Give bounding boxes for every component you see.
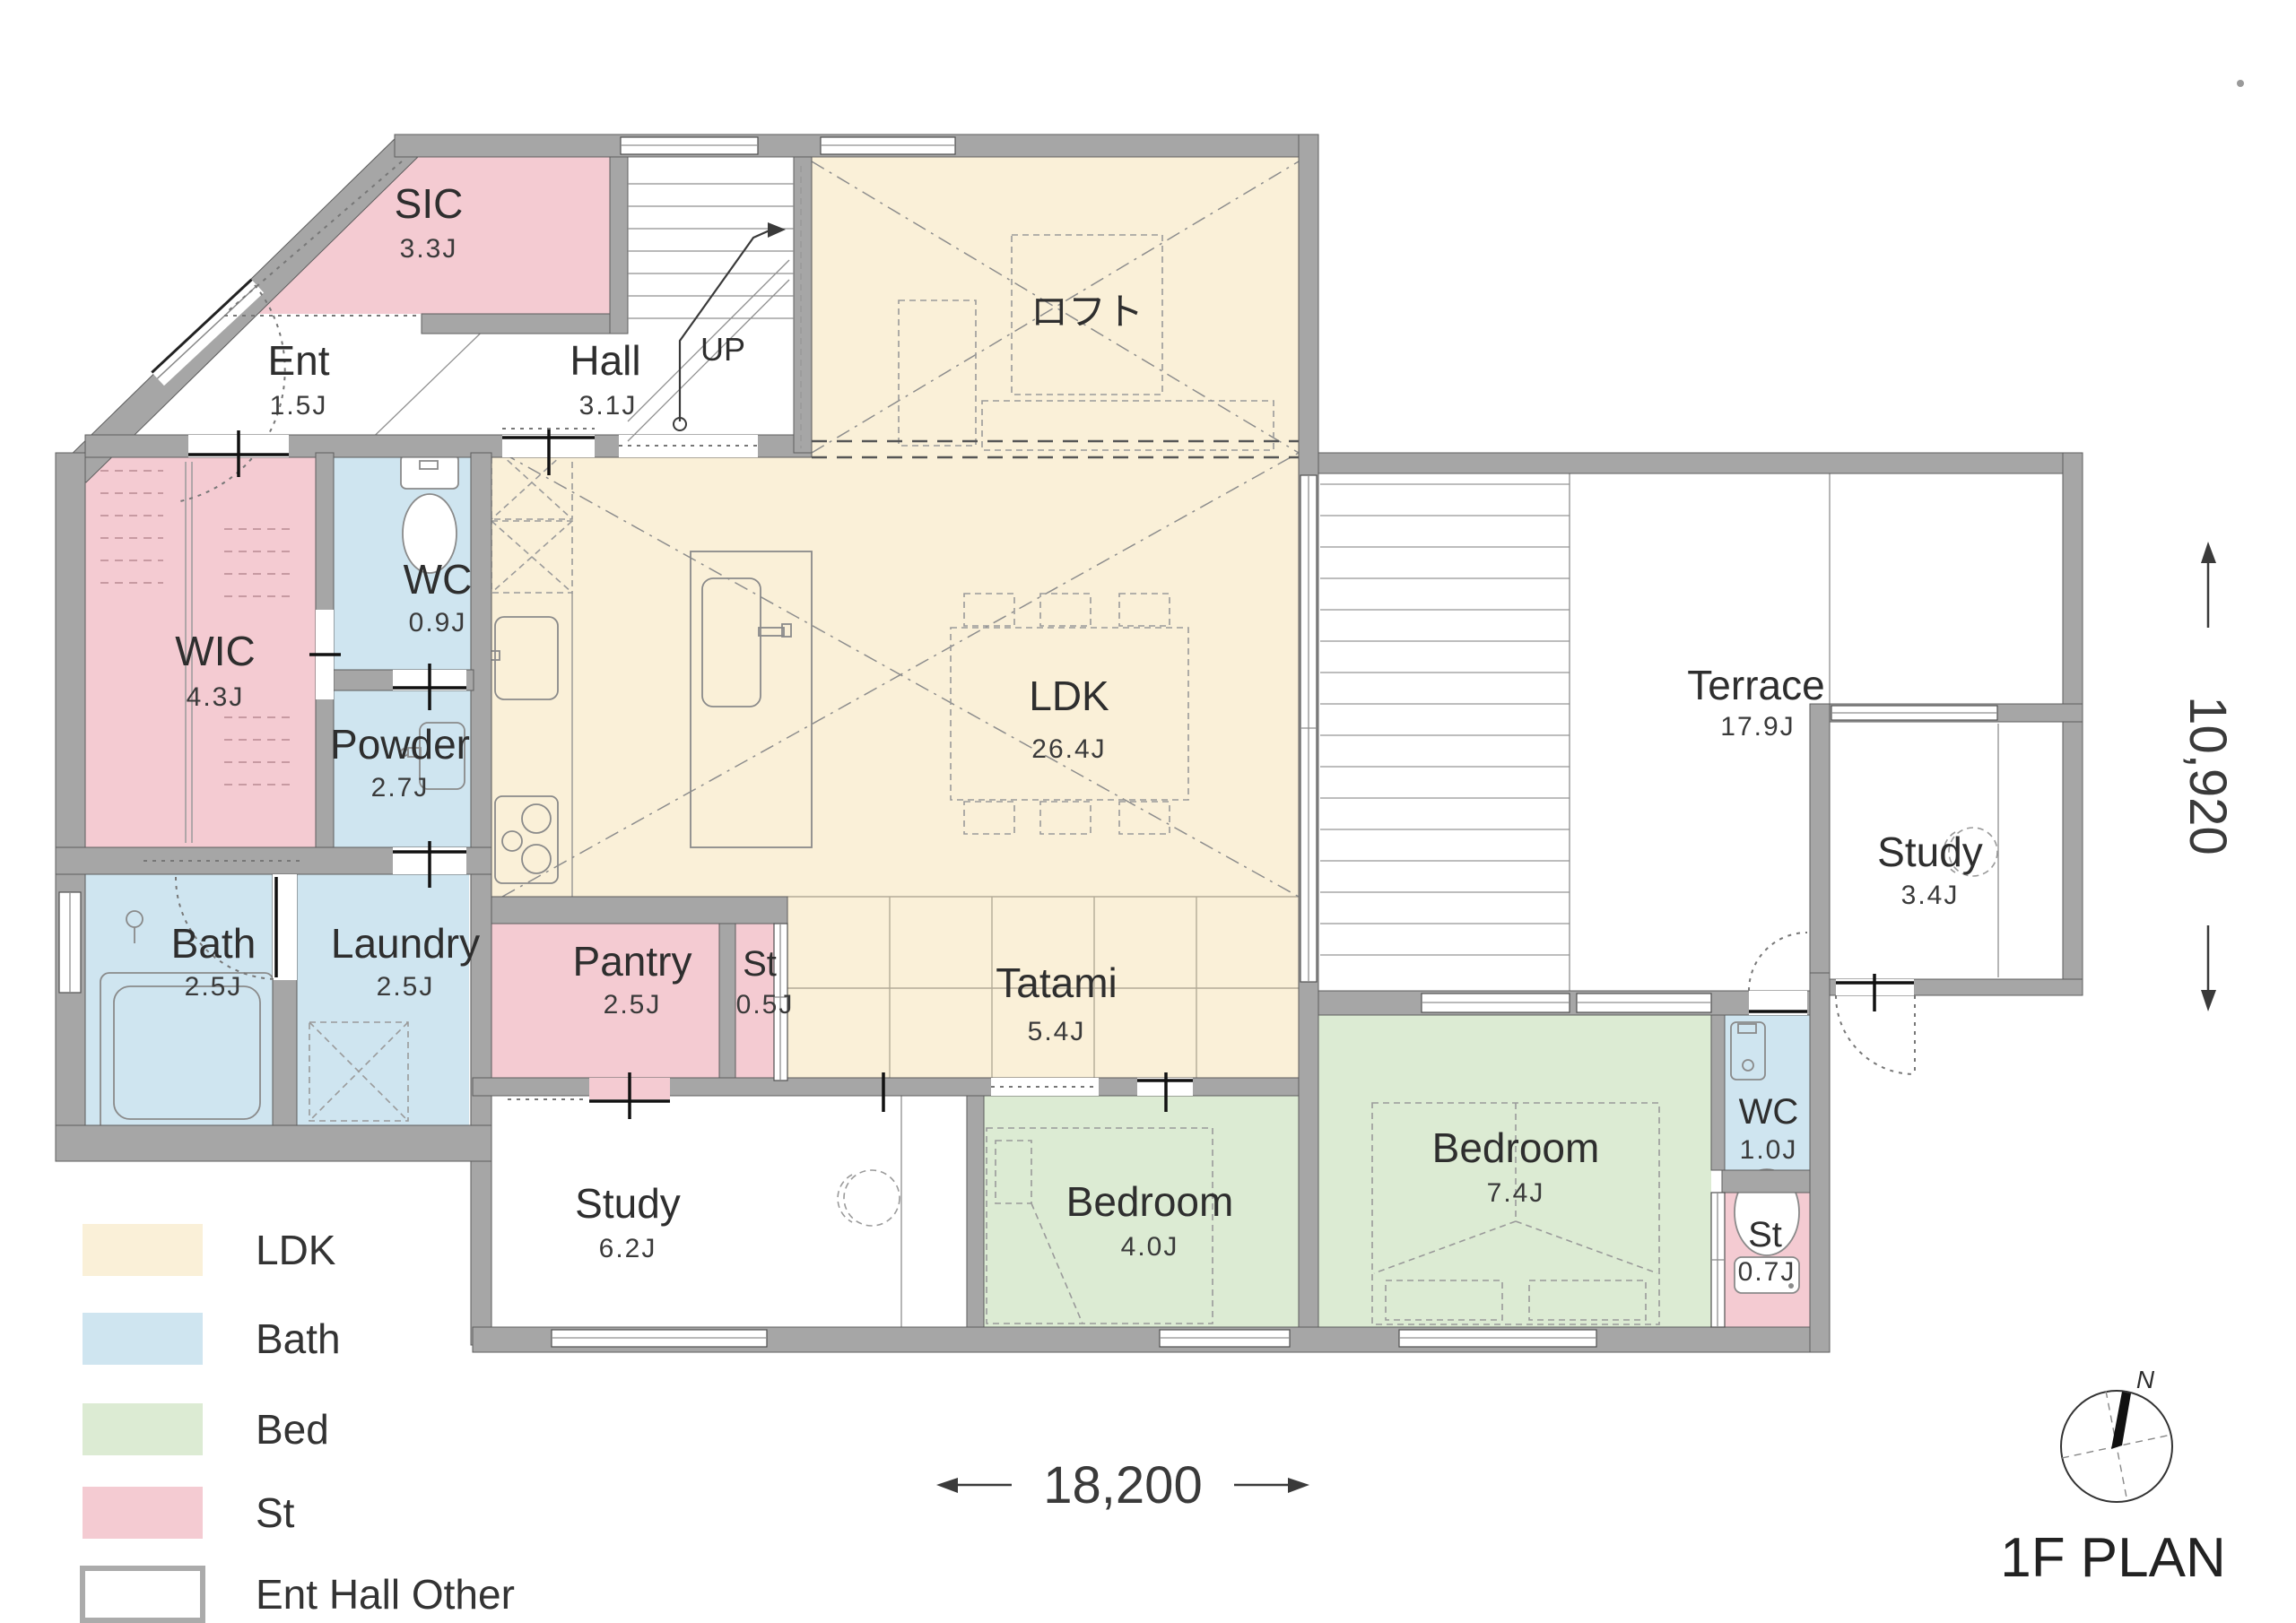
room-label-wc-bedroom: WC <box>1739 1092 1799 1132</box>
legend-swatch-other <box>83 1568 203 1620</box>
floor-plan-svg: SIC 3.3J Ent 1.5J Hall 3.1J UP ロフト WIC 4… <box>0 0 2296 1623</box>
room-area-study-terrace: 3.4J <box>1901 881 1960 910</box>
room-area-st-pantry: 0.5J <box>736 990 795 1020</box>
room-label-tatami: Tatami <box>996 959 1117 1006</box>
room-label-study-terrace: Study <box>1877 829 1983 875</box>
room-label-st-pantry: St <box>743 944 777 984</box>
room-area-powder: 2.7J <box>371 773 430 803</box>
room-area-laundry: 2.5J <box>377 972 435 1002</box>
room-area-ent: 1.5J <box>270 391 328 421</box>
room-area-st-bedroom: 0.7J <box>1738 1257 1796 1287</box>
legend-swatch-st <box>83 1487 203 1539</box>
legend-swatch-bed <box>83 1403 203 1455</box>
toilet-icon <box>401 455 458 489</box>
room-area-bath: 2.5J <box>185 972 243 1002</box>
dimension-width: 18,200 <box>936 1456 1309 1515</box>
compass-north-label: N <box>2136 1366 2155 1393</box>
room-area-wc-bedroom: 1.0J <box>1740 1135 1798 1165</box>
room-area-sic: 3.3J <box>400 234 458 264</box>
room-area-bedroom-small: 4.0J <box>1121 1232 1179 1262</box>
room-label-ldk: LDK <box>1029 673 1109 719</box>
legend-label-other: Ent Hall Other <box>256 1571 515 1618</box>
study-main-fixtures <box>838 1096 901 1327</box>
legend: LDK Bath Bed St Ent Hall Other <box>83 1224 515 1620</box>
room-label-wic: WIC <box>175 628 255 674</box>
arrow-right-icon <box>1288 1478 1309 1493</box>
dimension-height-label: 10,920 <box>2179 696 2237 855</box>
room-label-bedroom-main: Bedroom <box>1432 1124 1600 1171</box>
room-area-pantry: 2.5J <box>604 990 662 1020</box>
room-label-loft: ロフト <box>1031 291 1144 333</box>
room-label-laundry: Laundry <box>331 920 480 967</box>
room-label-powder: Powder <box>330 721 470 768</box>
ent-hall-divider <box>357 316 499 453</box>
room-area-hall: 3.1J <box>579 391 638 421</box>
room-area-wc-hall: 0.9J <box>409 608 467 638</box>
room-area-study-main: 6.2J <box>599 1234 657 1263</box>
legend-label-bed: Bed <box>256 1406 329 1453</box>
compass: N <box>2061 1366 2172 1502</box>
stairs-direction-arrow <box>680 230 770 421</box>
legend-label-ldk: LDK <box>256 1227 336 1273</box>
stairs-up-label: UP <box>700 331 745 368</box>
room-label-bath: Bath <box>171 920 257 967</box>
legend-label-st: St <box>256 1489 295 1536</box>
room-fill-powder <box>334 690 474 849</box>
room-label-hall: Hall <box>570 337 640 384</box>
room-label-bedroom-small: Bedroom <box>1066 1178 1234 1225</box>
legend-swatch-ldk <box>83 1224 203 1276</box>
arrow-up-icon <box>2201 542 2216 563</box>
legend-swatch-bath <box>83 1313 203 1365</box>
legend-label-bath: Bath <box>256 1315 341 1362</box>
entrance-door <box>147 274 264 386</box>
room-area-wic: 4.3J <box>187 682 245 712</box>
room-area-ldk: 26.4J <box>1031 734 1106 764</box>
room-label-wc-hall: WC <box>404 556 473 603</box>
dimension-width-label: 18,200 <box>1043 1456 1202 1515</box>
room-label-sic: SIC <box>395 180 464 227</box>
room-fill-bedroom-main <box>1318 1015 1711 1327</box>
stray-dot <box>2237 80 2244 87</box>
dimension-height: 10,920 <box>2179 542 2237 1011</box>
room-area-tatami: 5.4J <box>1028 1017 1086 1046</box>
chair-icon <box>844 1170 900 1226</box>
arrow-down-icon <box>2201 990 2216 1011</box>
room-label-terrace: Terrace <box>1687 662 1824 708</box>
room-label-pantry: Pantry <box>573 938 692 985</box>
stairs <box>628 184 794 441</box>
arrow-left-icon <box>936 1478 958 1493</box>
room-label-study-main: Study <box>575 1180 681 1227</box>
room-area-terrace: 17.9J <box>1720 712 1795 742</box>
room-label-ent: Ent <box>267 337 329 384</box>
floor-plan-page: SIC 3.3J Ent 1.5J Hall 3.1J UP ロフト WIC 4… <box>0 0 2296 1623</box>
plan-title: 1F PLAN <box>2000 1527 2226 1589</box>
room-area-bedroom-main: 7.4J <box>1487 1178 1545 1208</box>
room-label-st-bedroom: St <box>1748 1215 1782 1254</box>
